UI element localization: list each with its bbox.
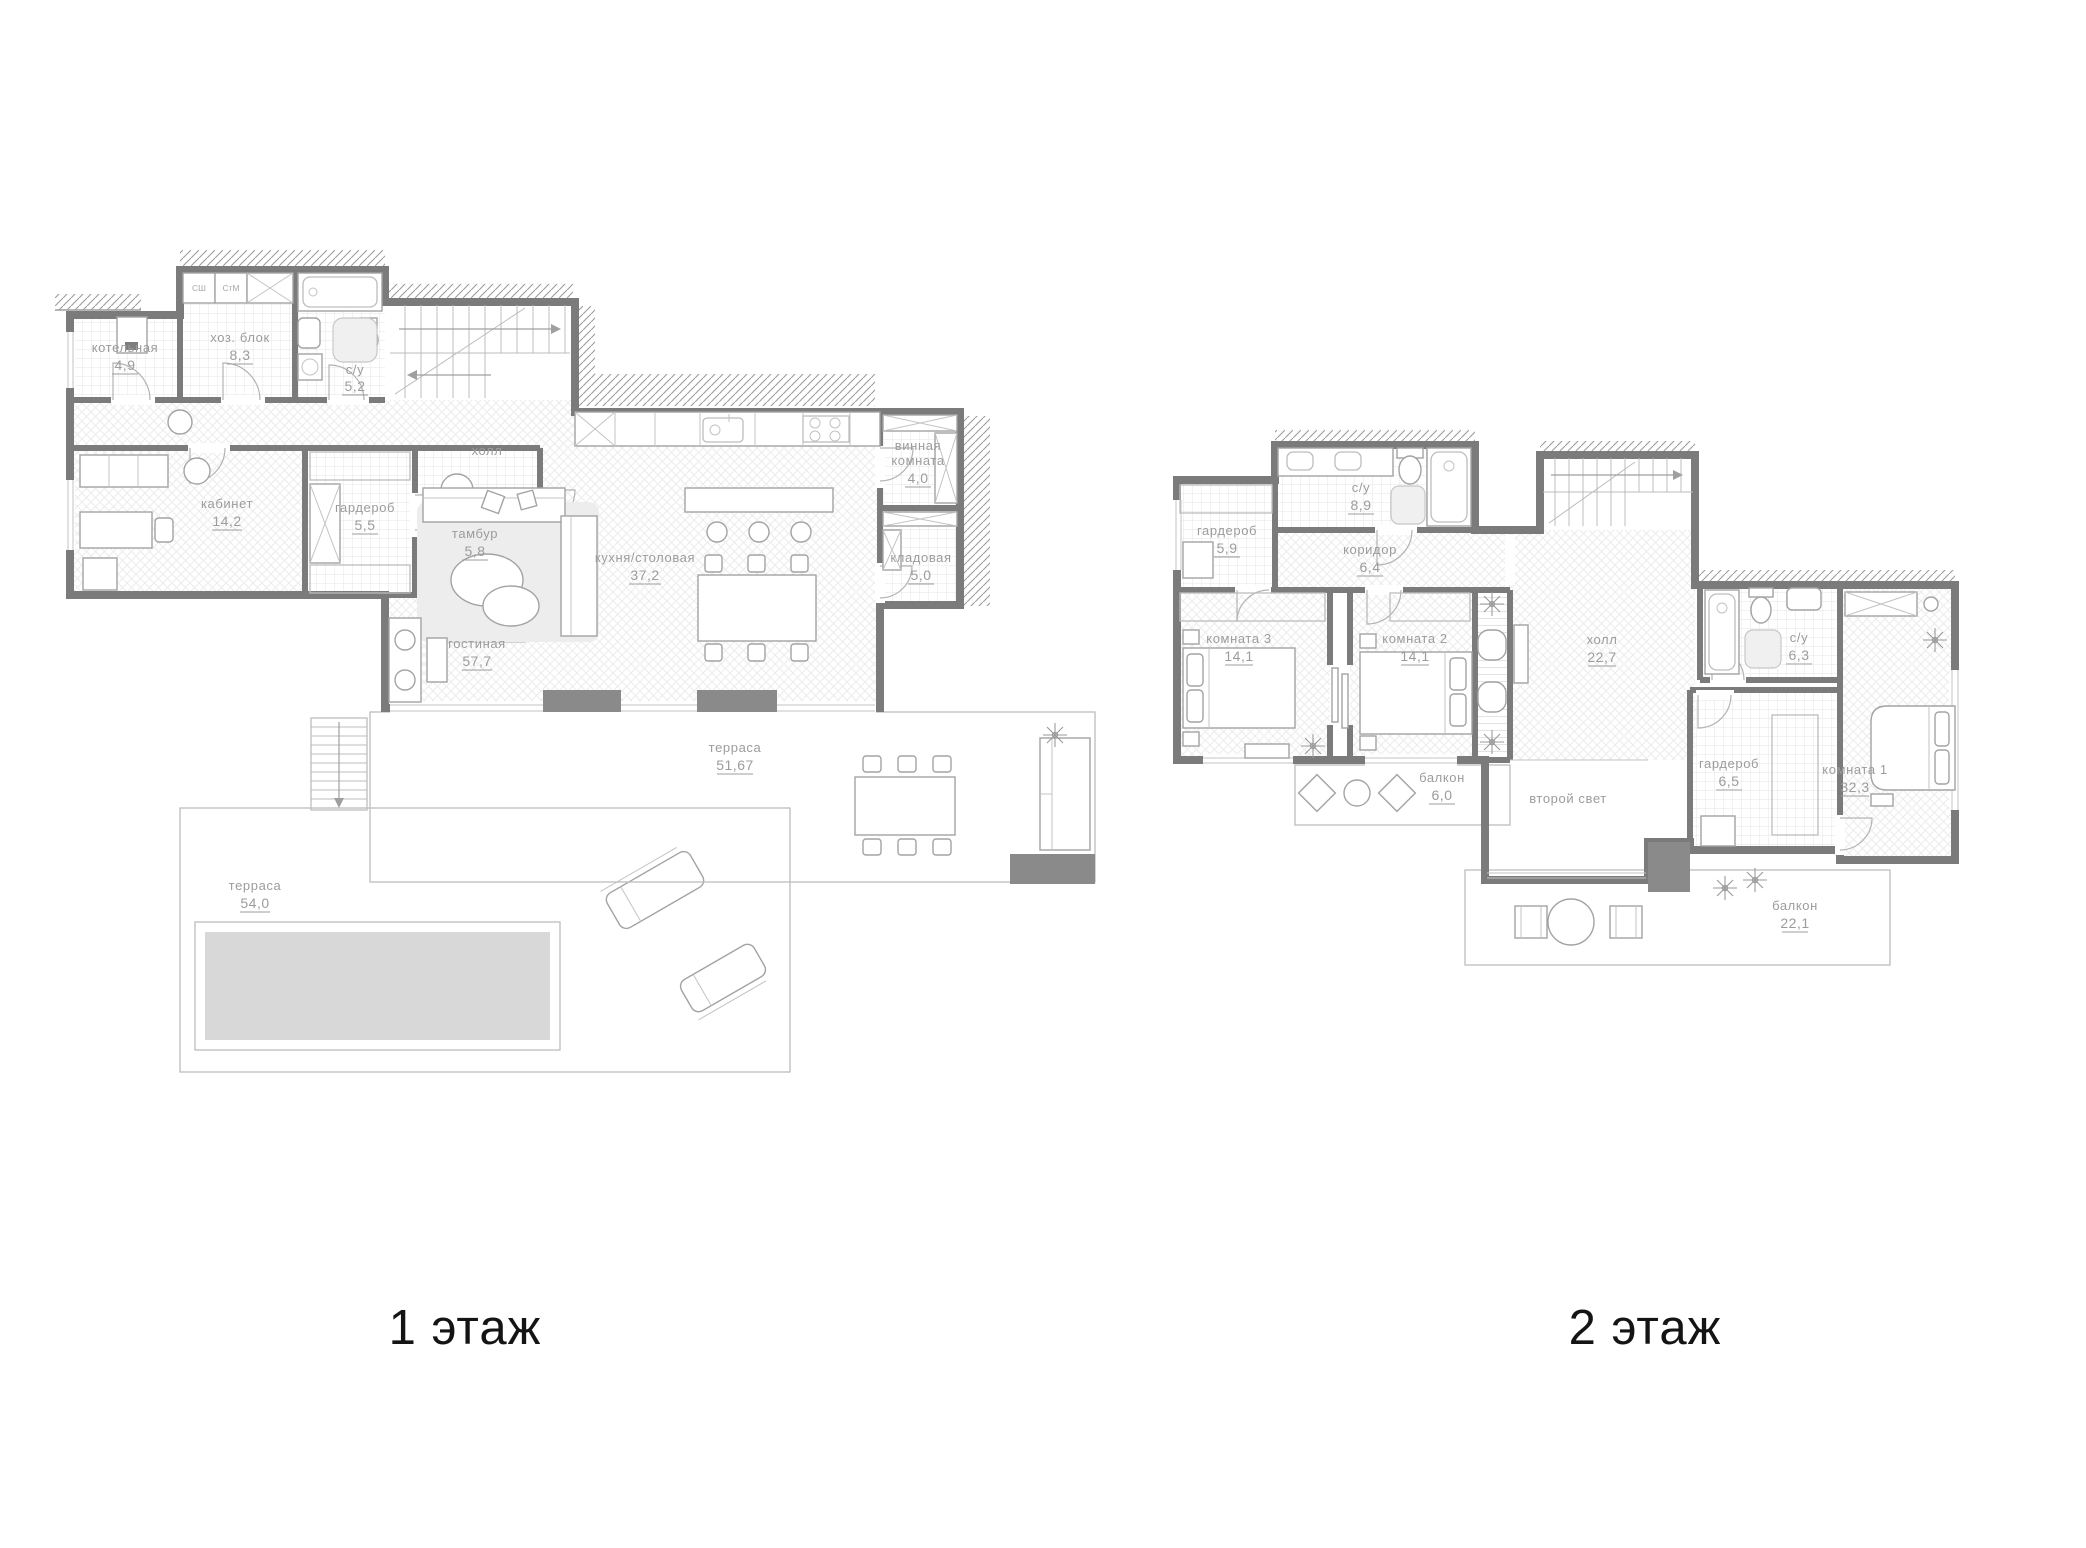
- bathtub-icon: [1427, 448, 1471, 526]
- room-label-su3: с/у 6,3: [1786, 630, 1812, 664]
- room-label-su2: с/у 8,9: [1348, 480, 1374, 514]
- chair-icon: [1299, 775, 1336, 812]
- svg-text:5,2: 5,2: [345, 378, 366, 394]
- bath-mat: [1391, 486, 1425, 524]
- stool-icon: [1515, 906, 1547, 938]
- svg-text:второй свет: второй свет: [1529, 791, 1607, 806]
- terrace-stairs-icon: [311, 718, 367, 810]
- svg-text:51,67: 51,67: [716, 757, 754, 773]
- plant-icon: [1743, 868, 1767, 892]
- pillow-icon: [1450, 658, 1466, 690]
- floorplan-canvas: СШ СтМ: [0, 0, 2086, 1548]
- svg-text:коридор: коридор: [1343, 542, 1397, 557]
- room-label-terrace-lower: терраса 54,0: [229, 878, 282, 912]
- sofa-icon: [80, 455, 168, 487]
- plant-icon: [1713, 876, 1737, 900]
- svg-text:14,2: 14,2: [212, 513, 241, 529]
- pillow-icon: [1935, 712, 1949, 746]
- svg-text:винная: винная: [895, 438, 941, 453]
- pillow-icon: [517, 490, 537, 510]
- armchair-icon: [1478, 682, 1506, 712]
- svg-text:с/у: с/у: [346, 362, 364, 377]
- room-label-su1: с/у 5,2: [342, 362, 368, 395]
- svg-text:с/у: с/у: [1352, 480, 1370, 495]
- closet-label-sh: СШ: [192, 283, 206, 293]
- svg-text:22,7: 22,7: [1587, 649, 1616, 665]
- side-table-icon: [427, 638, 447, 682]
- svg-text:54,0: 54,0: [240, 895, 269, 911]
- svg-text:балкон: балкон: [1772, 898, 1818, 913]
- svg-text:37,2: 37,2: [630, 567, 659, 583]
- closet-label-stm: СтМ: [222, 283, 239, 293]
- svg-text:тамбур: тамбур: [452, 526, 498, 541]
- svg-text:6,0: 6,0: [1432, 787, 1453, 803]
- sofa-icon: [561, 516, 597, 636]
- pillow-icon: [1187, 690, 1203, 722]
- shelf-icon: [1514, 625, 1528, 683]
- coffee-table-icon: [483, 586, 539, 626]
- svg-text:терраса: терраса: [229, 878, 282, 893]
- pouf-icon: [168, 410, 192, 434]
- floor1-caption: 1 этаж: [295, 1300, 635, 1356]
- pillow-icon: [1935, 750, 1949, 784]
- svg-text:с/у: с/у: [1790, 630, 1808, 645]
- svg-text:кладовая: кладовая: [890, 550, 951, 565]
- staircase-icon: [1543, 458, 1693, 526]
- svg-text:6,5: 6,5: [1719, 773, 1740, 789]
- sink-icon: [298, 318, 320, 348]
- svg-text:кабинет: кабинет: [201, 496, 253, 511]
- sun-lounger-icon: [678, 941, 772, 1019]
- svg-text:5,0: 5,0: [911, 567, 932, 583]
- bathtub-icon: [298, 273, 382, 311]
- nightstand-icon: [1360, 634, 1376, 648]
- wall-pier: [697, 690, 777, 712]
- dresser-icon: [1701, 816, 1735, 846]
- desk-icon: [1245, 744, 1289, 758]
- svg-text:хоз. блок: хоз. блок: [210, 330, 270, 345]
- svg-text:котельная: котельная: [92, 340, 159, 355]
- pouf-icon: [184, 458, 210, 484]
- table-icon: [1548, 899, 1594, 945]
- floor2-caption: 2 этаж: [1475, 1300, 1815, 1356]
- bench-icon: [1871, 794, 1893, 806]
- svg-text:8,3: 8,3: [230, 347, 251, 363]
- terrace-upper: [311, 712, 1095, 884]
- svg-text:6,4: 6,4: [1360, 559, 1381, 575]
- room-label-balkon-large: балкон 22,1: [1772, 898, 1818, 932]
- desk-icon: [80, 512, 152, 548]
- kitchen-counter: [575, 412, 880, 446]
- balcony-small-furniture: [1299, 775, 1416, 812]
- svg-text:14,1: 14,1: [1400, 648, 1429, 664]
- svg-text:14,1: 14,1: [1224, 648, 1253, 664]
- room-label-balkon-small: балкон 6,0: [1419, 770, 1465, 804]
- room-label-terrace-upper: терраса 51,67: [709, 740, 762, 774]
- svg-text:комната 1: комната 1: [1822, 762, 1887, 777]
- chair-icon: [1379, 775, 1416, 812]
- stool-icon: [1610, 906, 1642, 938]
- nightstand-icon: [1360, 736, 1376, 750]
- dining-table-icon: [698, 555, 816, 661]
- floor2-plan: гардероб 5,9 с/у 8,9 коридор 6,4 комната…: [1165, 430, 1965, 990]
- pillow-icon: [1450, 694, 1466, 726]
- bath-mat: [333, 318, 377, 362]
- room-label-holl2: холл 22,7: [1587, 632, 1618, 666]
- bath-mat: [1745, 630, 1781, 668]
- svg-text:гостиная: гостиная: [448, 636, 506, 651]
- floor1-plan: СШ СтМ: [55, 250, 1100, 1090]
- stool-icon: [749, 522, 769, 542]
- svg-text:комната 3: комната 3: [1206, 631, 1271, 646]
- svg-text:5,8: 5,8: [465, 543, 486, 559]
- svg-text:кухня/столовая: кухня/столовая: [595, 550, 695, 565]
- svg-text:гардероб: гардероб: [1197, 523, 1257, 538]
- sink-icon: [1787, 588, 1821, 610]
- fireplace: [543, 690, 621, 712]
- terrace-planter: [1010, 854, 1095, 884]
- svg-text:комната 2: комната 2: [1382, 631, 1447, 646]
- svg-text:холл: холл: [472, 443, 503, 458]
- svg-text:5,5: 5,5: [355, 517, 376, 533]
- nightstand-icon: [1183, 732, 1199, 746]
- cabinet-icon: [83, 558, 117, 590]
- toilet-icon: [1749, 588, 1773, 597]
- outdoor-dining-table-icon: [855, 756, 955, 855]
- staircase-icon: [390, 305, 570, 398]
- svg-text:4,0: 4,0: [908, 470, 929, 486]
- svg-text:4,9: 4,9: [115, 357, 136, 373]
- svg-text:5,9: 5,9: [1217, 540, 1238, 556]
- svg-text:балкон: балкон: [1419, 770, 1465, 785]
- dresser-icon: [1183, 542, 1213, 578]
- utility-closets: СШ СтМ: [183, 273, 293, 303]
- chair-icon: [155, 518, 173, 542]
- svg-text:комната: комната: [891, 453, 945, 468]
- room-label-vtoroy-svet: второй свет: [1529, 791, 1607, 806]
- svg-text:22,1: 22,1: [1780, 915, 1809, 931]
- outdoor-sofa-icon: [1040, 738, 1090, 850]
- svg-text:6,3: 6,3: [1789, 647, 1810, 663]
- terrace-lower: [180, 808, 790, 1072]
- room-label-holl1: холл: [472, 443, 503, 458]
- pool-water: [205, 932, 550, 1040]
- svg-text:8,9: 8,9: [1351, 497, 1372, 513]
- pillow-icon: [1187, 654, 1203, 686]
- stool-icon: [791, 522, 811, 542]
- sun-lounger-icon: [600, 843, 706, 931]
- armchair-icon: [1478, 630, 1506, 660]
- svg-text:57,7: 57,7: [462, 653, 491, 669]
- svg-text:гардероб: гардероб: [1699, 756, 1759, 771]
- nightstand-icon: [1183, 630, 1199, 644]
- svg-text:терраса: терраса: [709, 740, 762, 755]
- stool-icon: [707, 522, 727, 542]
- svg-text:гардероб: гардероб: [335, 500, 395, 515]
- svg-text:холл: холл: [1587, 632, 1618, 647]
- svg-text:32,3: 32,3: [1840, 779, 1869, 795]
- table-icon: [1344, 780, 1370, 806]
